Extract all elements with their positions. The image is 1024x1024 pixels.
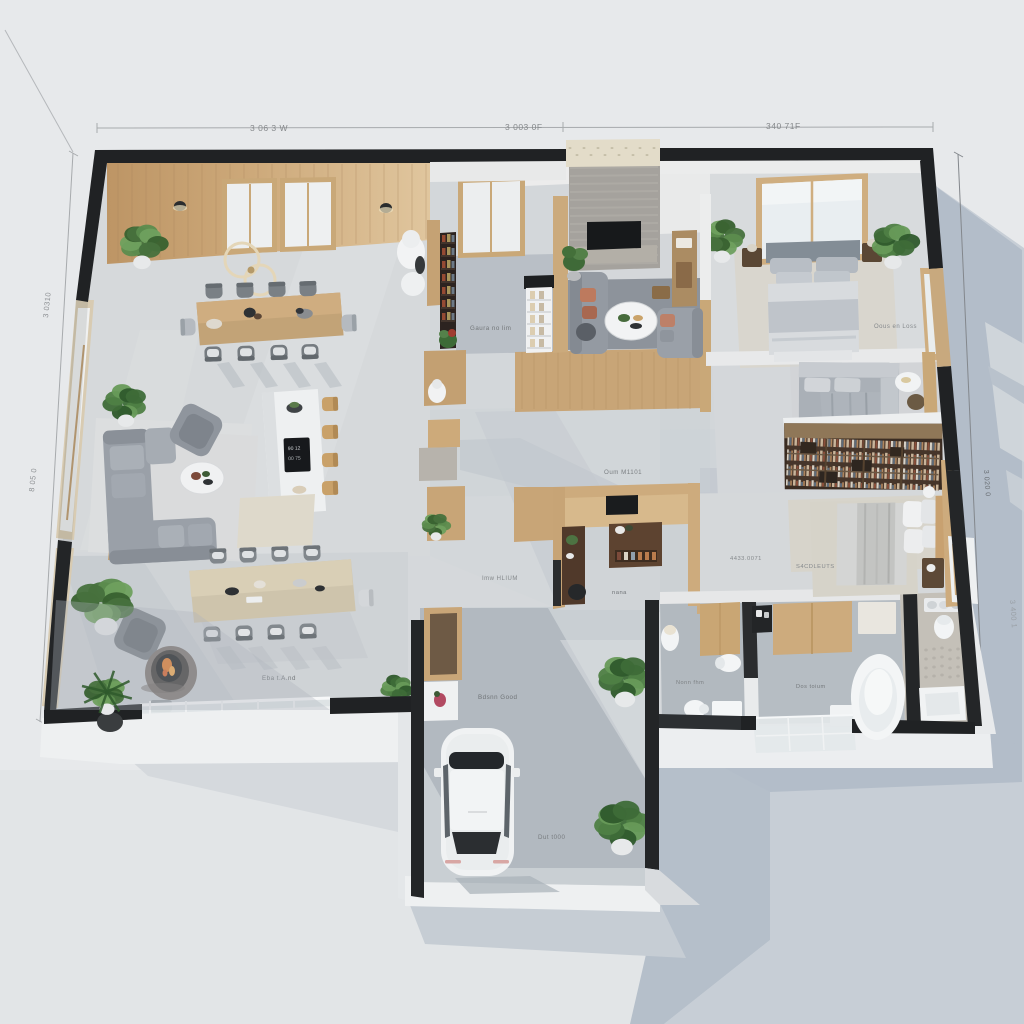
svg-text:3 06 3 W: 3 06 3 W xyxy=(250,123,288,133)
svg-text:Oum M1101: Oum M1101 xyxy=(604,469,642,476)
svg-text:90 12: 90 12 xyxy=(288,446,301,452)
svg-text:Oous en Loss: Oous en Loss xyxy=(874,324,917,330)
svg-text:Dut t000: Dut t000 xyxy=(538,834,565,841)
svg-text:S4CDLEUTS: S4CDLEUTS xyxy=(796,564,835,570)
svg-text:3 003 0F: 3 003 0F xyxy=(505,122,543,132)
svg-text:Dos toium: Dos toium xyxy=(796,684,826,690)
svg-text:340 71F: 340 71F xyxy=(766,121,801,131)
svg-text:nana: nana xyxy=(612,590,627,596)
svg-text:Gaura no lim: Gaura no lim xyxy=(470,325,511,332)
svg-text:Bdsnn Good: Bdsnn Good xyxy=(478,694,517,701)
svg-text:4433.0071: 4433.0071 xyxy=(730,556,762,562)
svg-text:Nonn fhm: Nonn fhm xyxy=(676,680,704,686)
svg-text:00 75: 00 75 xyxy=(288,456,301,462)
svg-text:Imw HLIUM: Imw HLIUM xyxy=(482,576,518,582)
